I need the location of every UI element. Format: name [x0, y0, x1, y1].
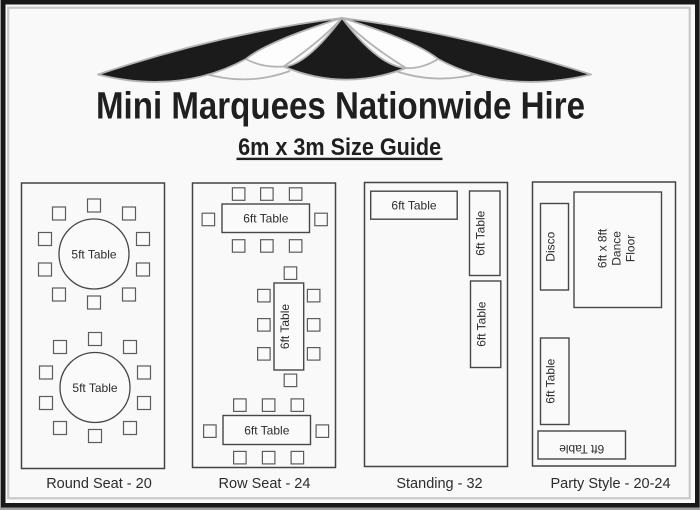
svg-text:Standing - 32: Standing - 32 — [396, 476, 482, 492]
svg-text:6ft Table: 6ft Table — [244, 423, 289, 437]
svg-text:6ft Table: 6ft Table — [474, 210, 488, 255]
svg-text:5ft Table: 5ft Table — [72, 381, 117, 395]
svg-text:6ft Table: 6ft Table — [391, 199, 436, 213]
svg-text:6ft Table: 6ft Table — [559, 442, 604, 456]
svg-text:Round Seat - 20: Round Seat - 20 — [46, 476, 152, 492]
svg-text:6ft Table: 6ft Table — [475, 301, 489, 346]
svg-text:Row Seat - 24: Row Seat - 24 — [219, 476, 311, 492]
svg-text:Party Style - 20-24: Party Style - 20-24 — [550, 476, 670, 492]
svg-text:Disco: Disco — [544, 231, 558, 261]
svg-text:6ft Table: 6ft Table — [243, 212, 288, 226]
svg-text:6ft Table: 6ft Table — [544, 358, 558, 403]
svg-text:6ft x 8ft: 6ft x 8ft — [596, 228, 610, 268]
svg-text:Dance: Dance — [610, 231, 624, 266]
svg-text:6ft Table: 6ft Table — [278, 304, 292, 349]
svg-text:Floor: Floor — [624, 235, 638, 262]
svg-text:5ft Table: 5ft Table — [71, 247, 116, 261]
svg-text:6m x 3m Size Guide: 6m x 3m Size Guide — [238, 134, 441, 161]
svg-text:Mini Marquees Nationwide Hire: Mini Marquees Nationwide Hire — [96, 86, 585, 128]
